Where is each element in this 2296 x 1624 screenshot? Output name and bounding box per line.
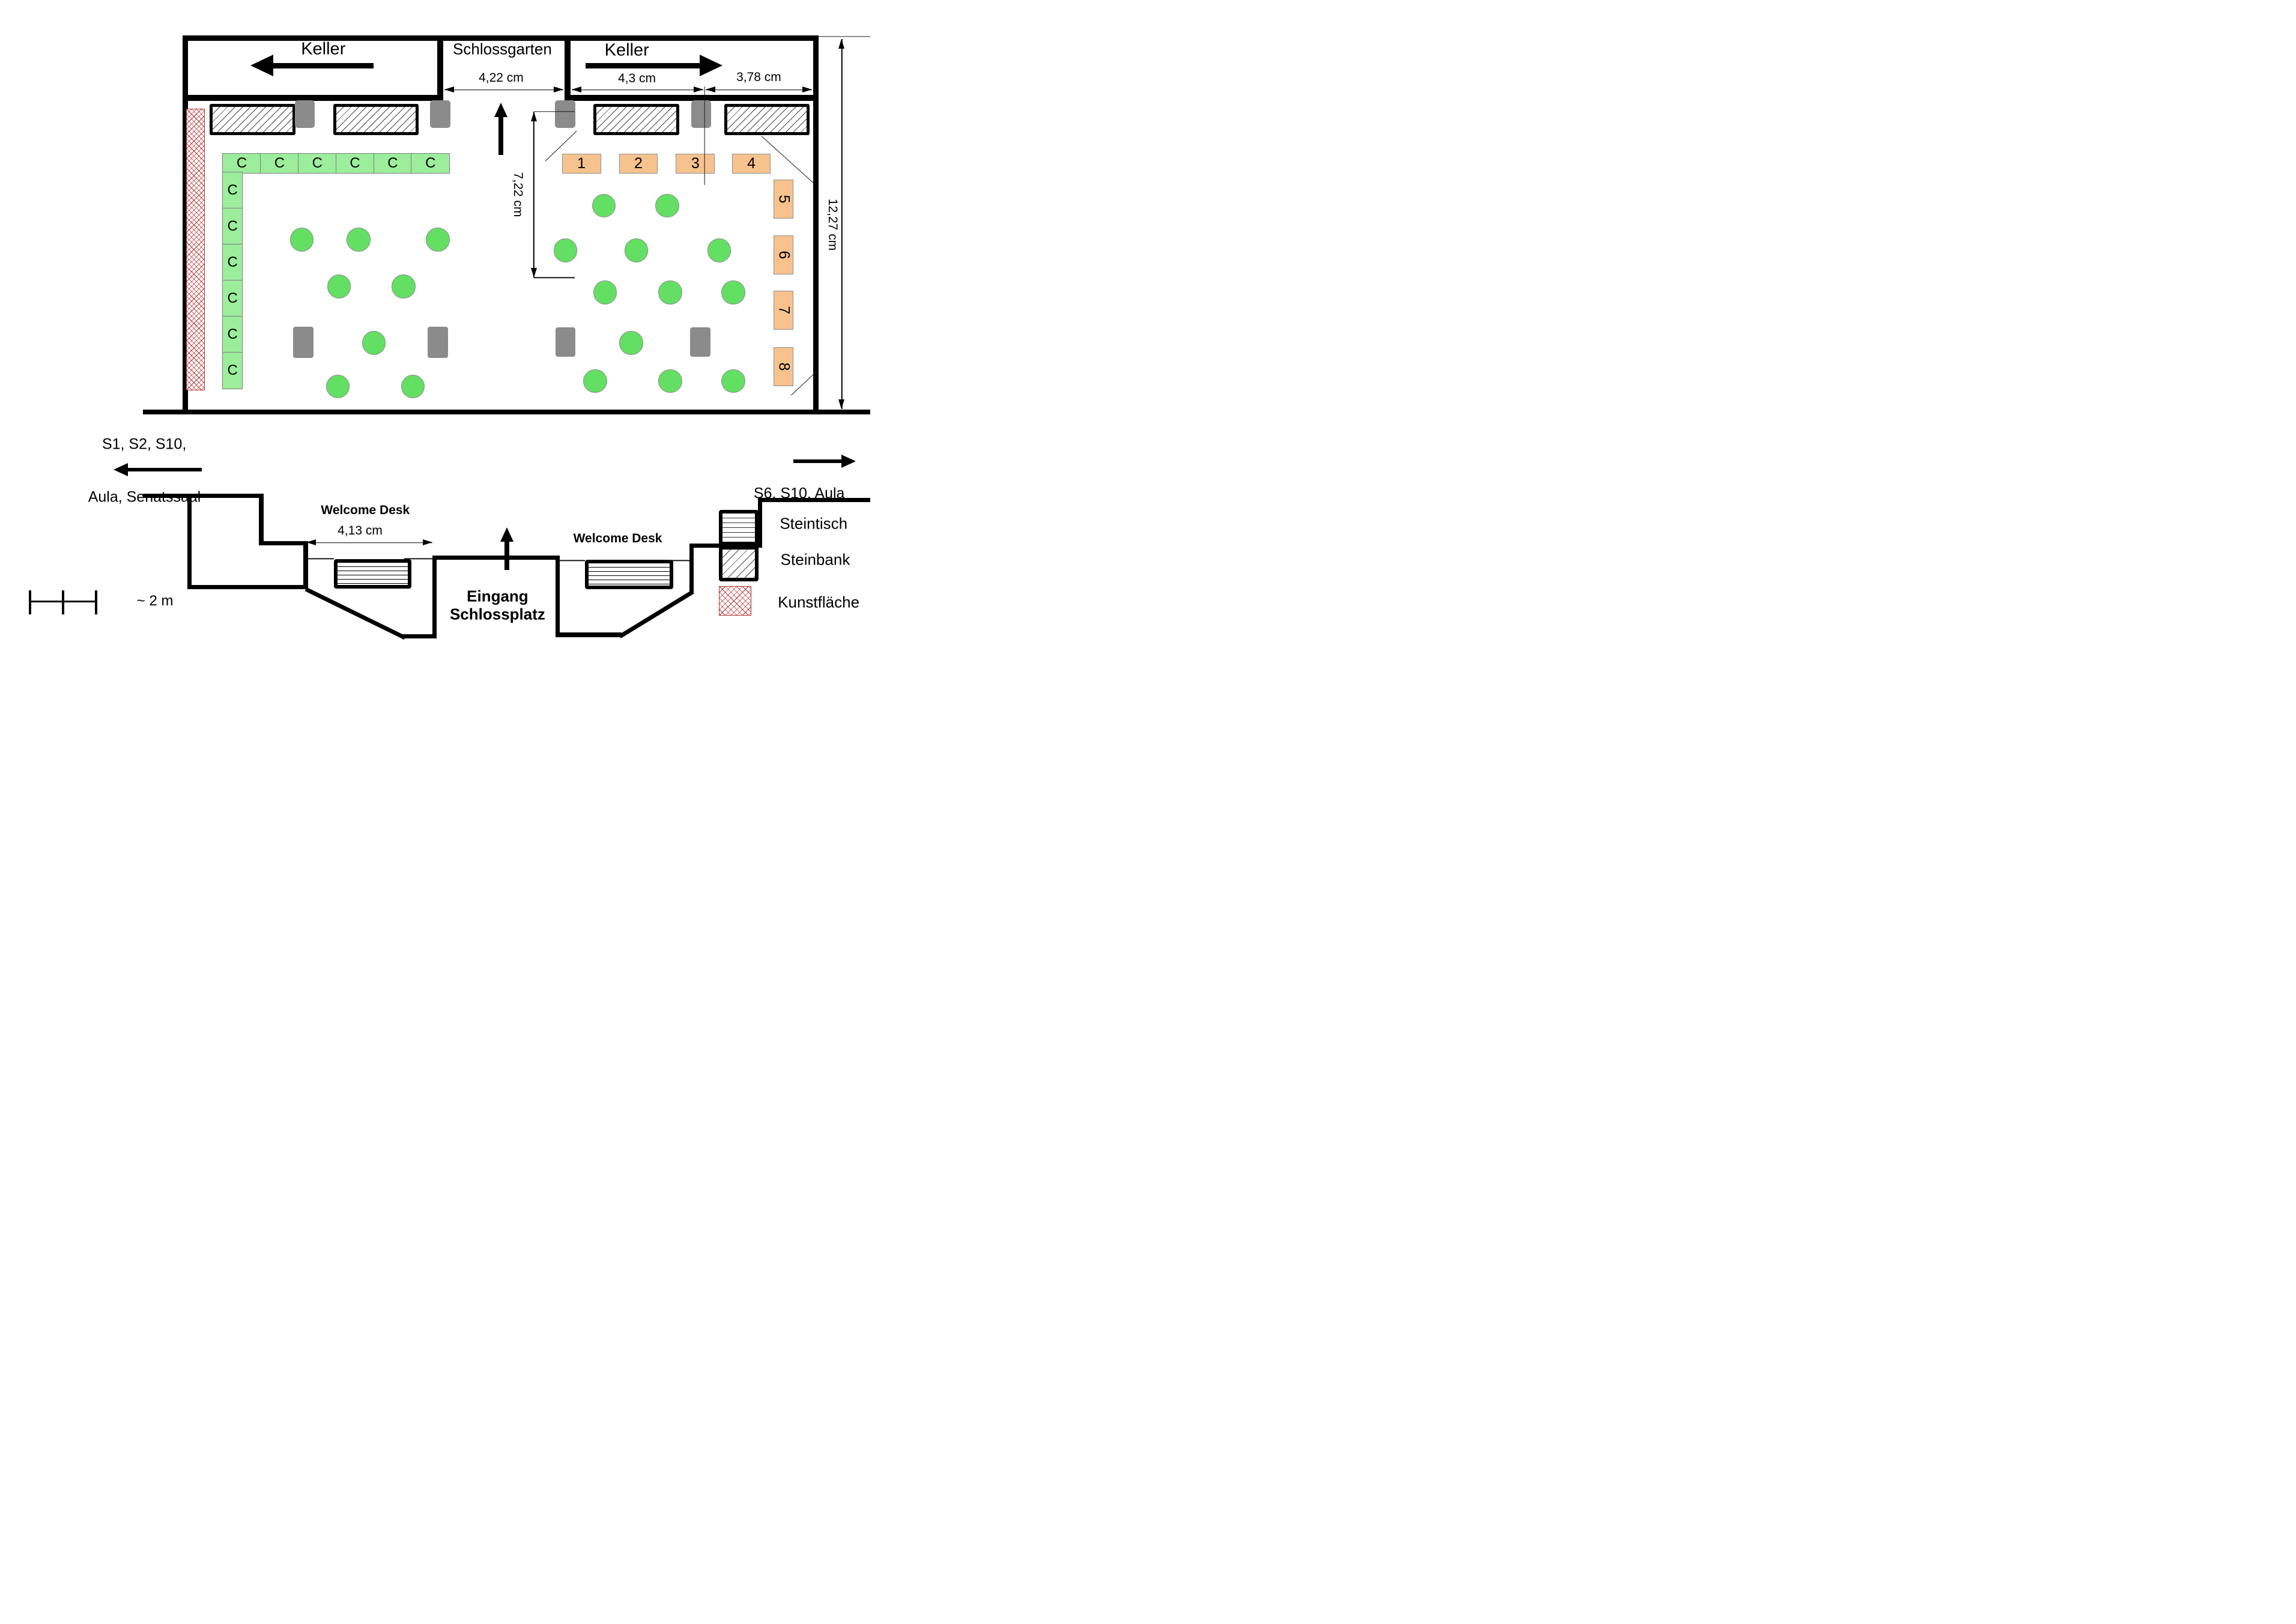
dimension-line — [444, 89, 564, 91]
dimension-line — [572, 89, 703, 91]
thin-line — [666, 560, 690, 561]
wall — [432, 556, 560, 560]
door-marker — [295, 100, 315, 128]
wall — [303, 541, 307, 589]
round-table-circle — [721, 369, 745, 393]
wall — [183, 35, 819, 41]
round-table-circle — [401, 375, 425, 399]
catering-table-cell: C — [298, 153, 337, 173]
floor-plan-canvas: Keller Keller Schlossgarten 4,22 cm 4,3 … — [0, 0, 919, 650]
welcome-desk — [334, 559, 411, 589]
dimension-line — [841, 39, 843, 409]
dimension-arrowhead — [838, 399, 844, 409]
welcome-desk-right-label: Welcome Desk — [574, 532, 662, 546]
scale-bar-tick — [29, 590, 31, 614]
steintisch-legend-label: Steintisch — [780, 514, 847, 533]
numbered-table: 3 — [676, 154, 715, 174]
eingang-label-line2: Schlossplatz — [450, 605, 545, 624]
scale-label: ~ 2 m — [137, 593, 174, 610]
eingang-label-line1: Eingang — [467, 587, 529, 605]
dimension-arrowhead — [838, 39, 844, 49]
door-marker — [691, 100, 711, 128]
scale-bar-tick — [62, 590, 64, 614]
wall — [437, 35, 443, 101]
numbered-table: 7 — [774, 291, 793, 330]
thin-line — [404, 559, 432, 559]
direction-arrow-head — [841, 455, 856, 468]
round-table-circle — [707, 238, 732, 262]
wall-diagonal — [619, 590, 694, 638]
steinbank-bench — [333, 104, 419, 135]
wall — [556, 632, 621, 637]
numbered-table: 8 — [774, 347, 793, 386]
wall — [556, 556, 560, 637]
dimension-line — [706, 89, 812, 91]
wall — [259, 541, 307, 545]
door-marker — [555, 100, 575, 128]
round-table-circle — [347, 228, 371, 252]
round-table-circle — [593, 280, 617, 304]
catering-table-cell: C — [222, 244, 243, 281]
wall — [758, 498, 762, 548]
round-table-circle — [290, 228, 314, 252]
thin-line — [704, 86, 704, 185]
round-table-circle — [655, 194, 679, 218]
dimension-arrowhead — [306, 539, 316, 545]
thin-line — [534, 277, 575, 278]
dimension-label-422: 4,22 cm — [479, 71, 524, 85]
direction-arrow-head — [500, 527, 513, 542]
dimension-label-413: 4,13 cm — [338, 524, 383, 538]
numbered-table: 1 — [562, 154, 601, 174]
keller-left-label: Keller — [301, 40, 345, 59]
wall — [758, 498, 870, 502]
direction-arrow-shaft — [498, 117, 503, 155]
round-table-circle — [625, 238, 649, 262]
round-table-circle — [658, 280, 682, 304]
numbered-table: 4 — [732, 154, 771, 174]
direction-arrow-head — [700, 55, 722, 76]
steintisch-legend-icon — [719, 510, 759, 545]
catering-table-cell: C — [222, 352, 243, 389]
direction-arrow-shaft — [128, 468, 202, 471]
round-table-circle — [554, 238, 578, 262]
dimension-label-43: 4,3 cm — [618, 71, 656, 86]
keller-right-label: Keller — [605, 41, 649, 61]
catering-table-cell: C — [222, 153, 261, 173]
thin-line — [308, 559, 334, 559]
wall — [143, 494, 264, 498]
wall — [689, 544, 694, 593]
steinbank-bench — [210, 104, 295, 135]
welcome-desk — [585, 560, 673, 589]
round-table-circle — [583, 369, 607, 393]
dimension-arrowhead — [706, 86, 715, 92]
catering-table-cell: C — [336, 153, 375, 173]
round-table-circle — [592, 194, 616, 218]
numbered-table: 2 — [619, 154, 658, 174]
dimension-line — [533, 112, 535, 277]
kunstflaeche-area — [186, 109, 204, 390]
dimension-label-378: 3,78 cm — [736, 70, 781, 85]
wall — [689, 544, 762, 548]
thin-line — [534, 111, 575, 112]
catering-table-cell: C — [222, 172, 243, 209]
wall-diagonal — [304, 587, 405, 639]
dimension-arrowhead — [694, 86, 703, 92]
dimension-arrowhead — [444, 86, 454, 92]
round-table-circle — [619, 331, 643, 355]
gray-block — [428, 327, 448, 358]
gray-block — [293, 327, 314, 358]
kunstflaeche-legend-label: Kunstfläche — [778, 593, 859, 611]
corridor-left-rooms-label-line1: S1, S2, S10, — [102, 435, 186, 453]
dimension-arrowhead — [531, 112, 537, 121]
steinbank-bench — [593, 104, 679, 135]
numbered-table: 6 — [774, 235, 793, 274]
dimension-arrowhead — [572, 86, 581, 92]
dimension-arrowhead — [802, 86, 812, 92]
round-table-circle — [392, 274, 416, 298]
wall — [813, 35, 819, 414]
dimension-arrowhead — [423, 539, 432, 545]
thin-line — [819, 36, 870, 37]
numbered-table: 5 — [774, 180, 793, 219]
steinbank-legend-icon — [719, 546, 758, 581]
steinbank-legend-label: Steinbank — [781, 550, 850, 569]
round-table-circle — [362, 331, 386, 355]
welcome-desk-left-label: Welcome Desk — [321, 503, 410, 518]
catering-table-cell: C — [222, 316, 243, 353]
schlossgarten-label: Schlossgarten — [453, 40, 552, 59]
gray-block — [556, 327, 575, 356]
wall — [565, 95, 818, 101]
dimension-arrowhead — [531, 268, 537, 277]
thin-line — [560, 560, 585, 561]
direction-arrow-head — [250, 55, 273, 76]
dimension-label-722: 7,22 cm — [510, 172, 525, 217]
round-table-circle — [658, 369, 682, 393]
round-table-circle — [327, 274, 351, 298]
dimension-label-1227: 12,27 cm — [825, 199, 840, 250]
steinbank-bench — [724, 104, 810, 135]
wall — [187, 585, 308, 589]
round-table-circle — [326, 375, 350, 399]
wall — [259, 494, 263, 545]
kunstflaeche-legend-icon — [719, 586, 751, 615]
gray-block — [690, 327, 710, 356]
dimension-arrowhead — [554, 86, 563, 92]
wall — [402, 634, 434, 638]
catering-table-cell: C — [222, 280, 243, 317]
catering-table-cell: C — [411, 153, 450, 173]
direction-arrow-shaft — [793, 459, 841, 463]
dimension-line — [306, 542, 433, 544]
catering-table-cell: C — [374, 153, 413, 173]
direction-arrow-shaft — [504, 542, 509, 570]
wall — [565, 35, 571, 101]
direction-arrow-shaft — [273, 63, 374, 68]
wall — [432, 556, 437, 638]
direction-arrow-head — [114, 463, 128, 476]
door-marker — [430, 100, 450, 128]
catering-table-cell: C — [222, 208, 243, 245]
direction-arrow-head — [494, 103, 507, 117]
round-table-circle — [721, 280, 745, 304]
direction-arrow-shaft — [586, 63, 700, 68]
wall — [187, 494, 192, 589]
scale-bar-tick — [95, 590, 97, 614]
catering-table-cell: C — [260, 153, 299, 173]
round-table-circle — [426, 228, 450, 252]
wall — [143, 410, 870, 414]
